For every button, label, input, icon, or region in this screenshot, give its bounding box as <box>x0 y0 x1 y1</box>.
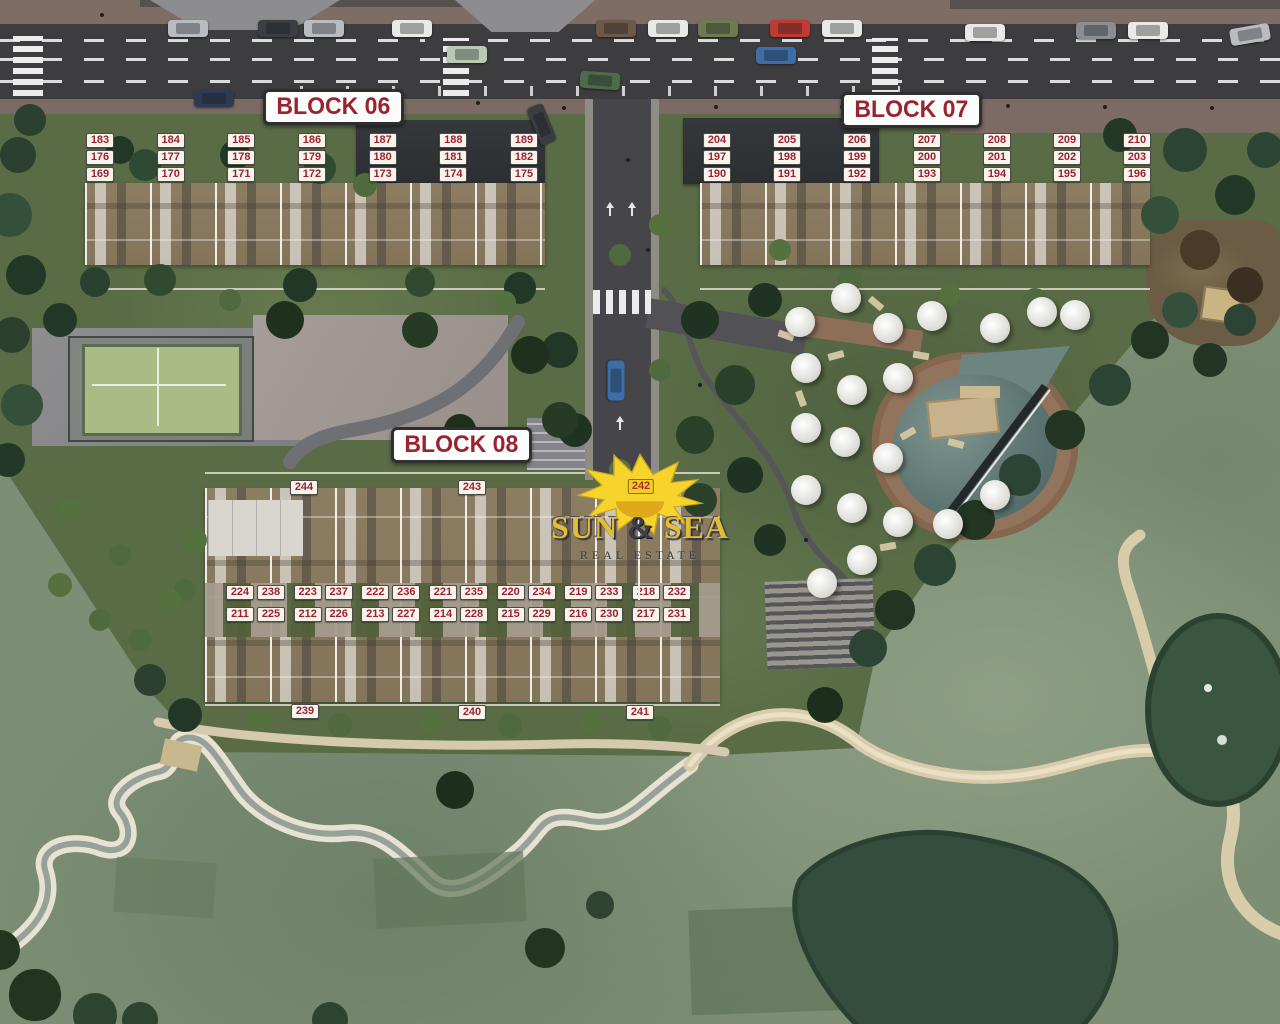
umbrella <box>785 307 815 337</box>
unit-badge[interactable]: 190 <box>703 167 731 182</box>
garden-wall <box>700 288 1150 290</box>
unit-badge[interactable]: 182 <box>510 150 538 165</box>
block08-units-row-1: 224238 223237 222236 221235 220234 21923… <box>226 585 691 600</box>
umbrella <box>791 353 821 383</box>
unit-badge[interactable]: 212 <box>294 607 322 622</box>
unit-badge[interactable]: 178 <box>227 150 255 165</box>
curb-edge <box>950 0 1280 9</box>
umbrella <box>830 427 860 457</box>
unit-badge[interactable]: 202 <box>1053 150 1081 165</box>
unit-badge[interactable]: 205 <box>773 133 801 148</box>
crosswalk <box>593 290 651 314</box>
unit-badge[interactable]: 236 <box>392 585 420 600</box>
car <box>698 20 738 37</box>
unit-badge[interactable]: 196 <box>1123 167 1151 182</box>
padel-court-line <box>157 348 159 426</box>
block06-units-row-3: 169 170 171 172 173 174 175 <box>86 167 538 182</box>
pool-step <box>960 386 1000 398</box>
unit-badge[interactable]: 231 <box>663 607 691 622</box>
unit-badge[interactable]: 200 <box>913 150 941 165</box>
road-arrow <box>631 206 633 216</box>
car <box>608 361 625 401</box>
umbrella <box>917 301 947 331</box>
brand-ampersand: & <box>627 509 655 545</box>
umbrella <box>1060 300 1090 330</box>
site-plan: BLOCK 06 BLOCK 07 BLOCK 08 183 184 185 1… <box>0 0 1280 1024</box>
sidewalk <box>950 99 1280 133</box>
unit-badge[interactable]: 216 <box>564 607 592 622</box>
unit-badge[interactable]: 225 <box>257 607 285 622</box>
car <box>579 71 620 91</box>
unit-badge[interactable]: 244 <box>290 480 318 495</box>
unit-badge[interactable]: 221 <box>429 585 457 600</box>
unit-badge[interactable]: 222 <box>361 585 389 600</box>
crosswalk <box>13 36 43 96</box>
lane-line <box>0 39 425 42</box>
car <box>447 46 487 63</box>
unit-badge[interactable]: 220 <box>497 585 525 600</box>
unit-badge[interactable]: 172 <box>298 167 326 182</box>
unit-badge[interactable]: 174 <box>439 167 467 182</box>
umbrella <box>807 568 837 598</box>
unit-badge[interactable]: 237 <box>325 585 353 600</box>
brand-name: SUN & SEA <box>548 510 732 544</box>
unit-badge[interactable]: 219 <box>564 585 592 600</box>
garden-wall <box>85 288 545 290</box>
unit-badge[interactable]: 223 <box>294 585 322 600</box>
unit-badge[interactable]: 204 <box>703 133 731 148</box>
block-07-label-text: BLOCK 07 <box>854 96 968 124</box>
unit-badge[interactable]: 239 <box>291 704 319 719</box>
block07-units-row-1: 204 205 206 207 208 209 210 <box>703 133 1151 148</box>
lane-line <box>0 80 1280 83</box>
umbrella <box>831 283 861 313</box>
unit-badge[interactable]: 234 <box>528 585 556 600</box>
car <box>304 20 344 37</box>
unit-badge[interactable]: 185 <box>227 133 255 148</box>
car <box>756 47 796 64</box>
unit-badge-on-sun[interactable]: 242 <box>628 479 654 494</box>
unit-badge[interactable]: 197 <box>703 150 731 165</box>
block06-building[interactable] <box>85 183 545 265</box>
unit-badge[interactable]: 189 <box>510 133 538 148</box>
unit-badge[interactable]: 180 <box>369 150 397 165</box>
unit-badge[interactable]: 201 <box>983 150 1011 165</box>
block-08-label-text: BLOCK 08 <box>404 431 518 459</box>
car <box>822 20 862 37</box>
unit-badge[interactable]: 186 <box>298 133 326 148</box>
umbrella <box>837 375 867 405</box>
unit-badge[interactable]: 232 <box>663 585 691 600</box>
unit-badge[interactable]: 193 <box>913 167 941 182</box>
block-06-label-text: BLOCK 06 <box>276 93 390 121</box>
umbrella <box>873 313 903 343</box>
unit-badge[interactable]: 224 <box>226 585 254 600</box>
brand-word-sun: SUN <box>551 509 618 545</box>
unit-badge[interactable]: 241 <box>626 705 654 720</box>
road-arrow <box>609 206 611 216</box>
umbrella <box>883 363 913 393</box>
unit-badge[interactable]: 177 <box>157 150 185 165</box>
unit-badge[interactable]: 171 <box>227 167 255 182</box>
unit-badge[interactable]: 214 <box>429 607 457 622</box>
unit-badge[interactable]: 208 <box>983 133 1011 148</box>
unit-badge[interactable]: 238 <box>257 585 285 600</box>
unit-badge[interactable]: 203 <box>1123 150 1151 165</box>
block07-units-row-3: 190 191 192 193 194 195 196 <box>703 167 1151 182</box>
unit-badge[interactable]: 176 <box>86 150 114 165</box>
car <box>596 20 636 37</box>
unit-badge[interactable]: 187 <box>369 133 397 148</box>
unit-badge[interactable]: 233 <box>595 585 623 600</box>
unit-badge[interactable]: 229 <box>528 607 556 622</box>
unit-badge[interactable]: 228 <box>460 607 488 622</box>
car <box>648 20 688 37</box>
unit-badge[interactable]: 235 <box>460 585 488 600</box>
unit-badge[interactable]: 173 <box>369 167 397 182</box>
car <box>965 24 1005 41</box>
unit-badge[interactable]: 170 <box>157 167 185 182</box>
unit-badge[interactable]: 184 <box>157 133 185 148</box>
crosswalk <box>872 38 898 96</box>
unit-badge[interactable]: 240 <box>458 705 486 720</box>
brand-logo: SUN & SEA REAL ESTATE <box>548 452 732 572</box>
unit-badge[interactable]: 211 <box>226 607 254 622</box>
unit-badge[interactable]: 243 <box>458 480 486 495</box>
unit-badge[interactable]: 226 <box>325 607 353 622</box>
unit-badge[interactable]: 194 <box>983 167 1011 182</box>
brand-word-sea: SEA <box>664 509 729 545</box>
unit-badge[interactable]: 181 <box>439 150 467 165</box>
block06-units-row-1: 183 184 185 186 187 188 189 <box>86 133 538 148</box>
unit-badge[interactable]: 230 <box>595 607 623 622</box>
block08-units-row-2: 211225 212226 213227 214228 215229 21623… <box>226 607 691 622</box>
sidewalk <box>651 99 659 480</box>
unit-badge[interactable]: 195 <box>1053 167 1081 182</box>
unit-badge[interactable]: 183 <box>86 133 114 148</box>
unit-badge[interactable]: 198 <box>773 150 801 165</box>
unit-badge[interactable]: 210 <box>1123 133 1151 148</box>
unit-badge[interactable]: 179 <box>298 150 326 165</box>
car <box>194 90 234 107</box>
umbrella <box>837 493 867 523</box>
block-07-label[interactable]: BLOCK 07 <box>841 92 982 128</box>
road-arrow <box>619 420 621 430</box>
car <box>168 20 208 37</box>
unit-badge[interactable]: 192 <box>843 167 871 182</box>
umbrella <box>1027 297 1057 327</box>
block07-units-row-2: 197 198 199 200 201 202 203 <box>703 150 1151 165</box>
umbrella <box>873 443 903 473</box>
car <box>770 20 810 37</box>
car <box>1128 22 1168 39</box>
block-06-label[interactable]: BLOCK 06 <box>263 89 404 125</box>
unit-badge[interactable]: 218 <box>632 585 660 600</box>
brand-tagline: REAL ESTATE <box>550 548 730 563</box>
umbrella <box>847 545 877 575</box>
unit-badge[interactable]: 209 <box>1053 133 1081 148</box>
car <box>1076 22 1116 39</box>
umbrella <box>791 475 821 505</box>
lane-line <box>0 58 1280 61</box>
unit-badge[interactable]: 169 <box>86 167 114 182</box>
block08-white-roof <box>208 500 303 556</box>
pool-platform <box>926 394 1000 439</box>
unit-badge[interactable]: 217 <box>632 607 660 622</box>
umbrella <box>980 480 1010 510</box>
unit-badge[interactable]: 215 <box>497 607 525 622</box>
unit-badge[interactable]: 199 <box>843 150 871 165</box>
sidewalk <box>585 99 593 480</box>
unit-badge[interactable]: 206 <box>843 133 871 148</box>
unit-badge[interactable]: 207 <box>913 133 941 148</box>
umbrella <box>883 507 913 537</box>
car <box>392 20 432 37</box>
unit-badge[interactable]: 188 <box>439 133 467 148</box>
unit-badge[interactable]: 175 <box>510 167 538 182</box>
umbrella <box>980 313 1010 343</box>
unit-badge[interactable]: 227 <box>392 607 420 622</box>
umbrella <box>791 413 821 443</box>
unit-badge[interactable]: 213 <box>361 607 389 622</box>
block07-building[interactable] <box>700 183 1150 265</box>
block-08-label[interactable]: BLOCK 08 <box>391 427 532 463</box>
car <box>258 20 298 37</box>
unit-badge[interactable]: 191 <box>773 167 801 182</box>
padel-court <box>82 344 242 436</box>
block06-units-row-2: 176 177 178 179 180 181 182 <box>86 150 538 165</box>
padel-court-line <box>92 384 226 386</box>
umbrella <box>933 509 963 539</box>
